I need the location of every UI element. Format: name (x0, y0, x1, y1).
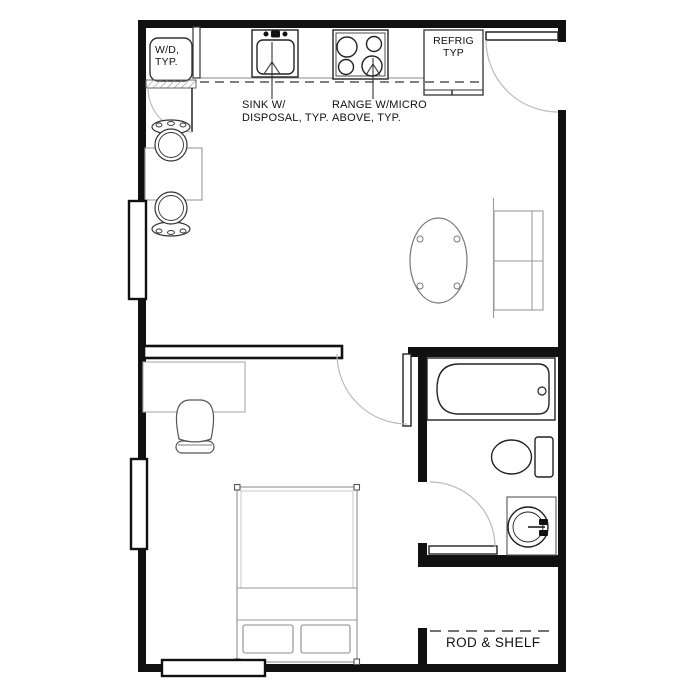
bathroom-sink (507, 497, 556, 555)
sink-knob-left (264, 32, 269, 37)
bathroom-door-swing-arc (430, 482, 495, 547)
refrigerator-label: REFRIG TYP (424, 36, 483, 59)
desk-chair-seat (176, 400, 213, 442)
wall-top-right-cap (558, 20, 566, 42)
toilet-tank (535, 437, 553, 477)
window-bottom (162, 660, 265, 676)
sofa (494, 198, 544, 318)
burner-top-left (337, 37, 357, 57)
sink-label-line2: DISPOSAL, TYP. (242, 112, 329, 125)
bathtub-drain (538, 387, 546, 395)
refrigerator-label-line2: TYP (424, 48, 483, 60)
chair-seat (155, 192, 187, 224)
toilet (492, 437, 554, 477)
range-label-line2: ABOVE, TYP. (332, 112, 427, 125)
wd-label: W/D, TYP. (155, 45, 179, 68)
floor-plan: W/D, TYP. SINK W/ DISPOSAL, TYP. RANGE W… (0, 0, 700, 700)
wall-bathroom-left (418, 357, 427, 482)
dining-chair-bottom (152, 192, 190, 236)
wall-right (558, 110, 566, 672)
range (333, 30, 388, 79)
chair-seat (155, 129, 187, 161)
toilet-bowl (492, 440, 532, 474)
window-left-lower (131, 459, 147, 549)
sink-basin (257, 40, 294, 74)
faucet-knob-bottom (539, 530, 548, 536)
sink-label-line1: SINK W/ (242, 99, 329, 112)
wall-left-lower (138, 548, 146, 672)
range-label-line1: RANGE W/MICRO (332, 99, 427, 112)
wall-closet-stub (418, 628, 427, 668)
entry-door-swing-arc (486, 40, 558, 112)
desk-chair (176, 400, 214, 453)
bedroom-door-leaf (403, 354, 411, 426)
pillow-left (243, 625, 293, 653)
sink-spout (271, 31, 280, 38)
dining-chair-top (152, 120, 190, 161)
wd-label-line2: TYP. (155, 57, 179, 69)
wall-bathroom-bottom (418, 555, 566, 567)
window-left-upper (129, 201, 146, 299)
burner-top-right (367, 37, 382, 52)
bedroom-door (337, 354, 411, 426)
wd-label-line1: W/D, (155, 45, 179, 57)
bathroom-door-leaf (429, 546, 497, 554)
refrigerator-label-line1: REFRIG (424, 36, 483, 48)
sink-knob-right (283, 32, 288, 37)
faucet-knob-top (539, 519, 548, 525)
rod-shelf-label-text: ROD & SHELF (446, 636, 540, 650)
dining-set (145, 120, 202, 236)
wd-closet-threshold (146, 80, 196, 88)
bedroom-door-swing-arc (337, 354, 407, 424)
rod-shelf-label: ROD & SHELF (446, 636, 540, 650)
wall-bathroom-left-stub (418, 543, 427, 557)
desk-chair-base (176, 441, 214, 453)
oval-table (410, 218, 467, 303)
wall-top (138, 20, 566, 28)
bathroom-door (429, 482, 497, 554)
range-label: RANGE W/MICRO ABOVE, TYP. (332, 99, 427, 124)
wd-closet-partition (193, 27, 200, 78)
entry-door-leaf (486, 32, 558, 40)
pillow-right (301, 625, 350, 653)
burner-bottom-left (339, 60, 354, 75)
kitchen-sink (252, 30, 298, 77)
bathtub (427, 358, 555, 420)
entry-door (486, 32, 558, 112)
sink-label: SINK W/ DISPOSAL, TYP. (242, 99, 329, 124)
interior-wall-bedroom (144, 346, 342, 358)
wall-bathroom-top (408, 347, 566, 357)
bed (235, 485, 360, 665)
